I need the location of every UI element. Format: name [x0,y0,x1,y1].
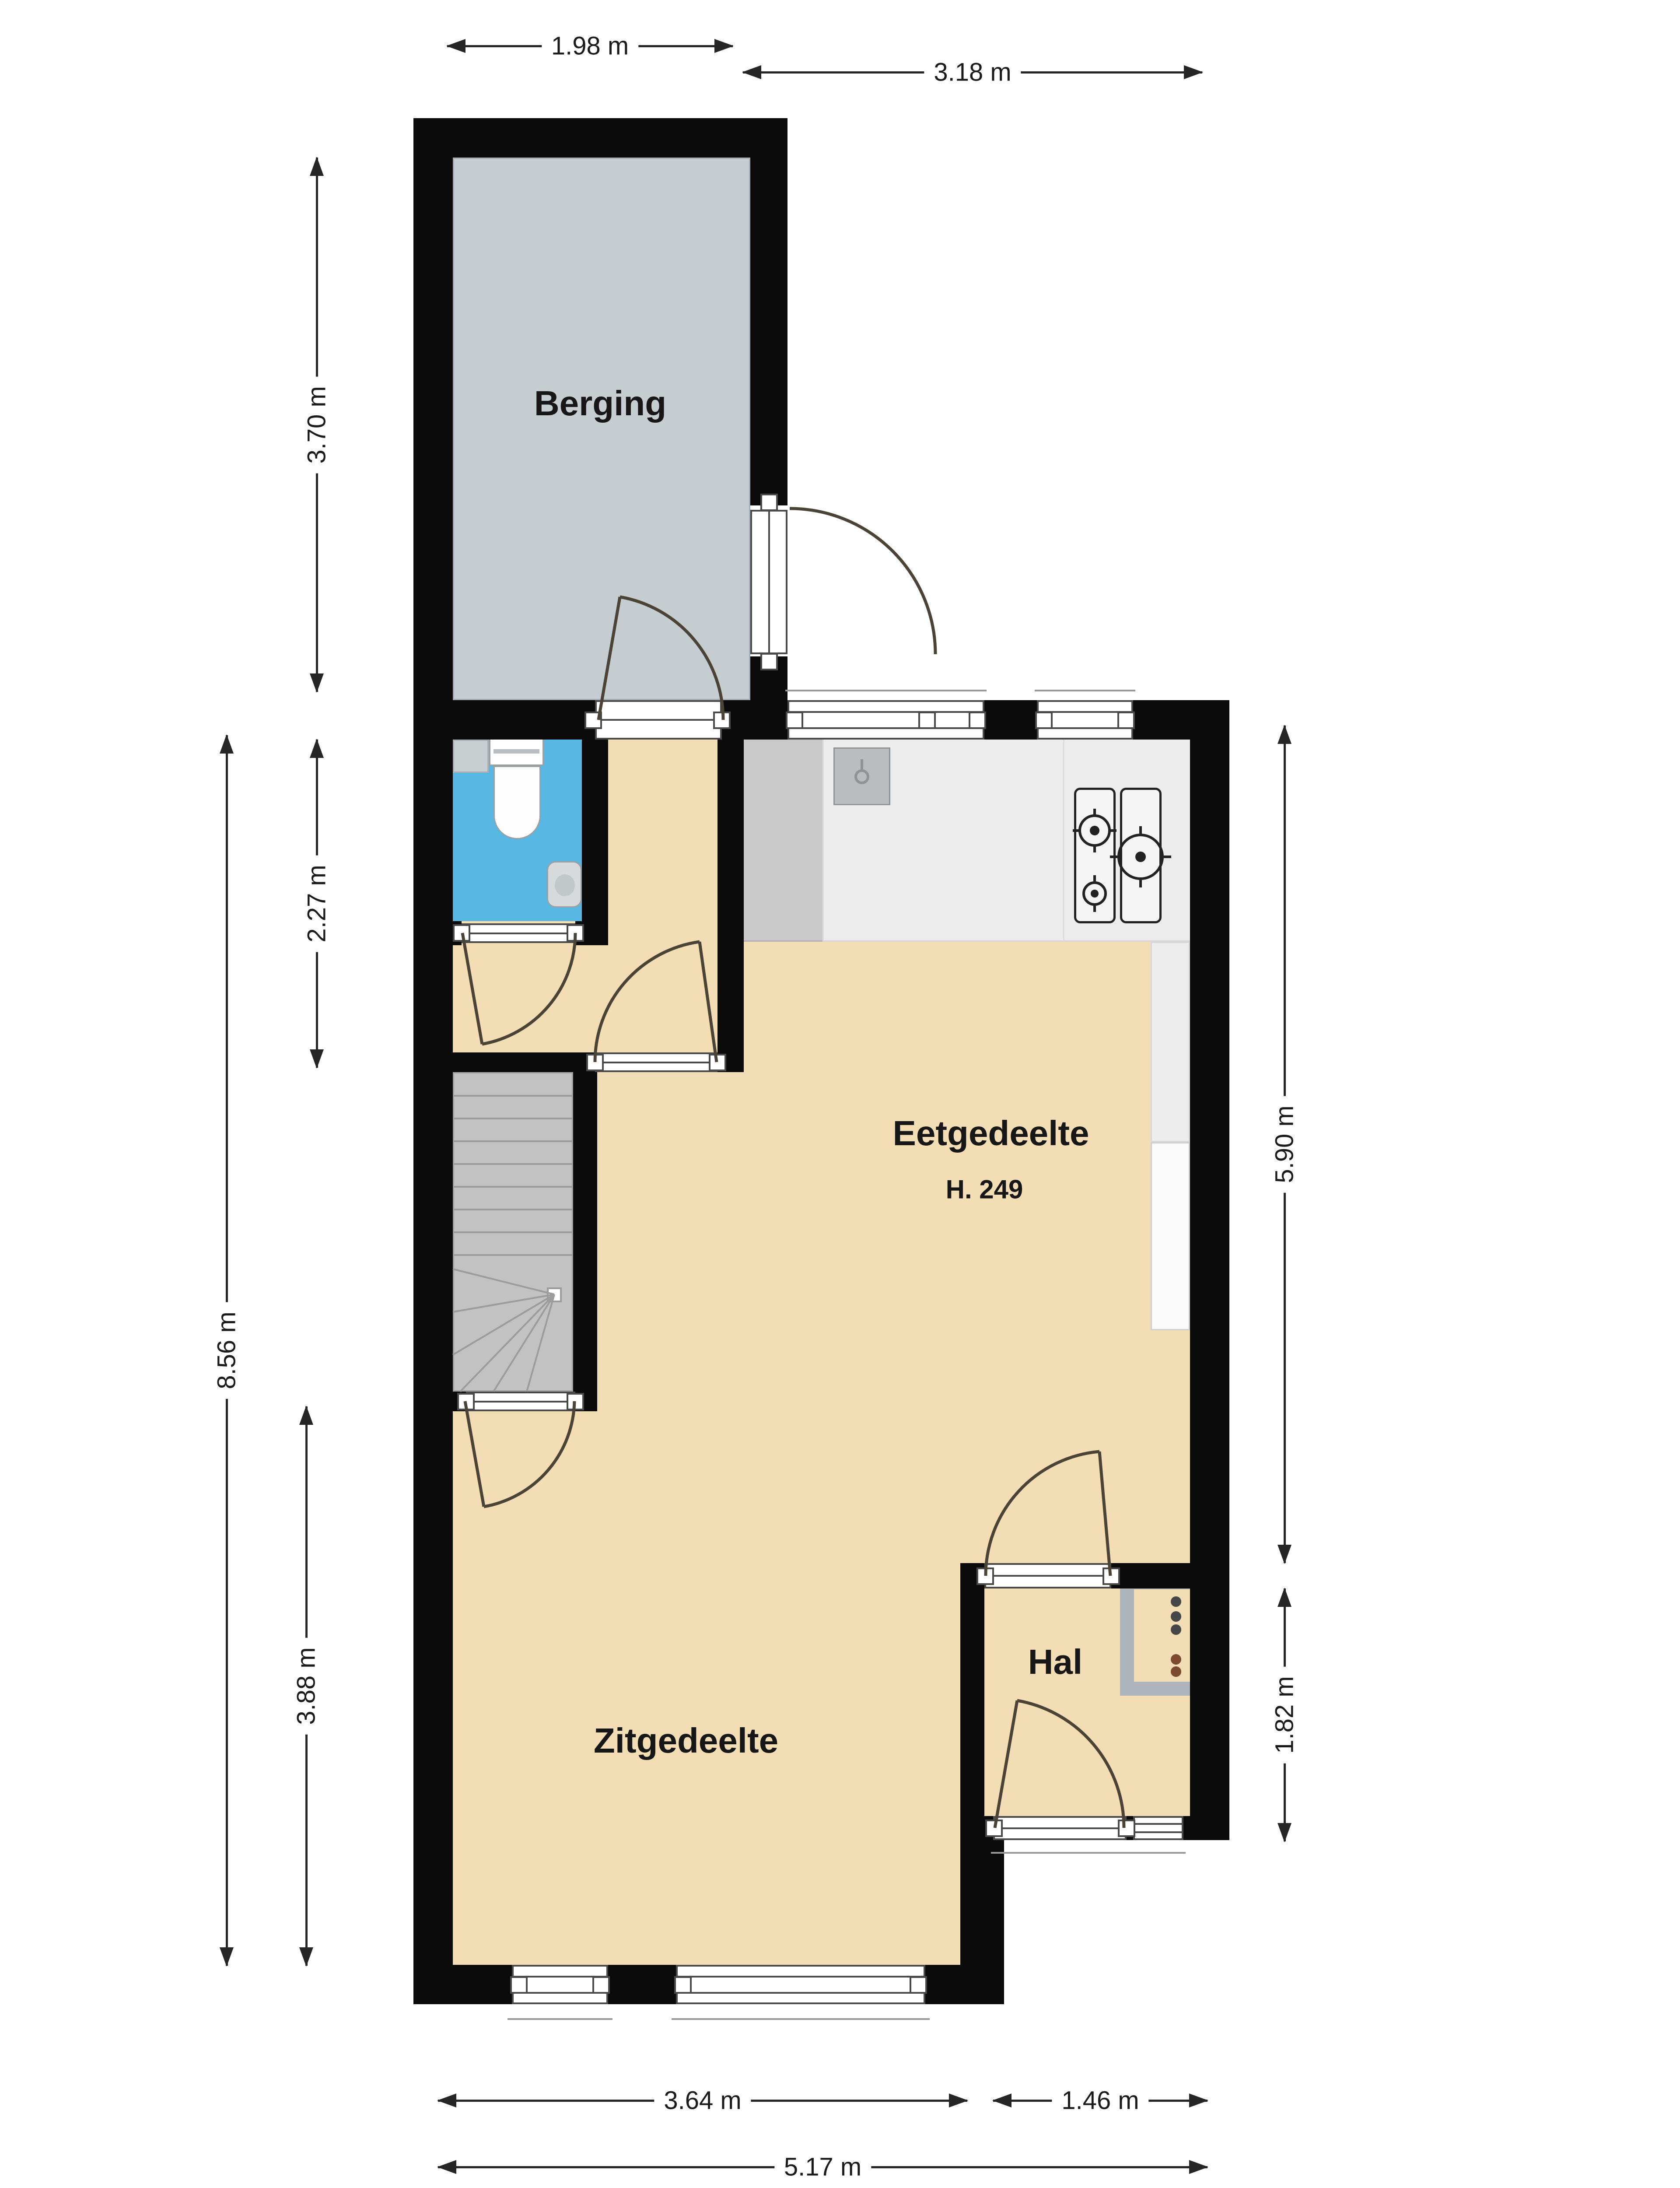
dim-corridor-depth: 2.27 m [307,740,326,1068]
front-door-sidelight [1133,1816,1183,1840]
stair-tread [453,1118,573,1119]
dim-sitting-depth: 3.88 m [297,1406,316,1966]
room-label-eetgedeelte: Eetgedeelte [892,1113,1089,1154]
wall-hal-north [1111,1563,1190,1588]
room-label-hal: Hal [1028,1642,1083,1682]
hal-floor [984,1588,1190,1816]
zitgedeelte-window-large [676,1965,925,2004]
kitchen-counter-left [744,740,822,942]
stair-tread [453,1231,573,1233]
lobby-floor [453,945,717,1052]
porch-step [991,1852,1186,1854]
dim-sitting-width: 3.64 m [438,2091,967,2110]
wall-main-north [413,700,595,740]
berging-exterior-door [750,510,787,654]
wall-berging-north [413,118,787,158]
window-sill [672,2018,930,2020]
room-label-zitgedeelte: Zitgedeelte [594,1721,778,1761]
hal-dining-door [984,1563,1111,1588]
window-end-post [1035,712,1053,729]
stair-tread [453,1140,573,1142]
kitchen-window-1 [787,700,984,740]
door-end-post [709,1054,726,1071]
dim-dining-depth: 5.90 m [1275,726,1294,1563]
room-label-berging: Berging [534,383,666,424]
door-end-post [453,924,470,942]
wall-south [925,1965,1004,2004]
toilet-corner-cabinet [453,740,489,773]
meter-cupboard-icon [1120,1575,1134,1696]
dim-storage-width: 1.98 m [447,36,733,56]
lobby-dining-door [595,1052,717,1072]
stair-winder-pivot [547,1287,562,1302]
washbasin-bowl [555,874,575,896]
kitchen-counter-right [1151,942,1190,1142]
dim-total-depth: 8.56 m [217,735,236,1966]
wall-berging-east-upper [750,118,787,505]
door-end-post [457,1393,475,1410]
wall-west-main [413,740,453,2004]
wall-south [413,1965,512,2004]
wall-main-north [722,700,787,740]
window-sill [785,690,987,691]
kitchen-sink-icon [833,747,890,805]
window-end-post [1117,712,1135,729]
wall-stairs-east [573,1072,597,1411]
wall-corridor [717,740,744,1072]
door-end-post [567,1393,584,1410]
wall-south-pier [608,1965,676,2004]
wall-front [1183,1816,1229,1840]
window-end-post [510,1976,528,1994]
wall-toilet-east [582,740,608,945]
door-end-post [760,653,778,670]
door-end-post [760,494,778,511]
front-door [993,1816,1127,1840]
toilet-bowl-icon [493,766,541,839]
dim-total-width: 5.17 m [438,2157,1207,2177]
toilet-door [462,923,575,943]
door-end-post [586,1054,604,1071]
stove-plate-left [1074,788,1116,923]
door-end-post [985,1820,1003,1837]
stair-tread [453,1254,573,1256]
berging-floor [453,158,750,700]
stair-tread [453,1163,573,1165]
window-mullion [918,712,936,729]
stair-tread [453,1095,573,1097]
window-end-post [786,712,803,729]
floor-plan: Berging Eetgedeelte H. 249 Zitgedeelte H… [0,0,1680,2188]
stair-tread [453,1209,573,1210]
zitgedeelte-floor [453,1411,960,1965]
window-end-post [592,1976,610,1994]
room-height-note: H. 249 [946,1175,1023,1205]
door-end-post [1118,1820,1135,1837]
door-end-post [567,924,584,942]
wall-lobby-south [453,1052,595,1072]
door-end-post [976,1567,994,1585]
stove-plate-right [1120,788,1162,923]
wall-hal-west [960,1563,984,1816]
window-sill [1035,690,1135,691]
kitchen-tall-cabinet [1151,1142,1190,1330]
door-end-post [1102,1567,1120,1585]
dim-kitchen-width: 3.18 m [743,63,1202,82]
berging-door-arc [790,508,935,654]
dim-storage-depth: 3.70 m [307,158,326,692]
wall-east [1190,700,1229,1840]
toilet-flush-line [493,749,539,754]
door-end-post [584,712,602,729]
dim-hall-width: 1.46 m [993,2091,1207,2110]
wall-main-north-pier [984,700,1037,740]
stairs-door [466,1392,575,1411]
door-end-post [713,712,731,729]
stair-tread [453,1186,573,1188]
window-sill [507,2018,612,2020]
window-end-post [969,712,986,729]
meter-cupboard-icon [1120,1682,1190,1696]
window-end-post [674,1976,692,1994]
dim-hall-depth: 1.82 m [1275,1588,1294,1841]
wall-west-upper [413,118,453,740]
berging-kitchen-door [595,700,722,740]
window-end-post [910,1976,927,1994]
